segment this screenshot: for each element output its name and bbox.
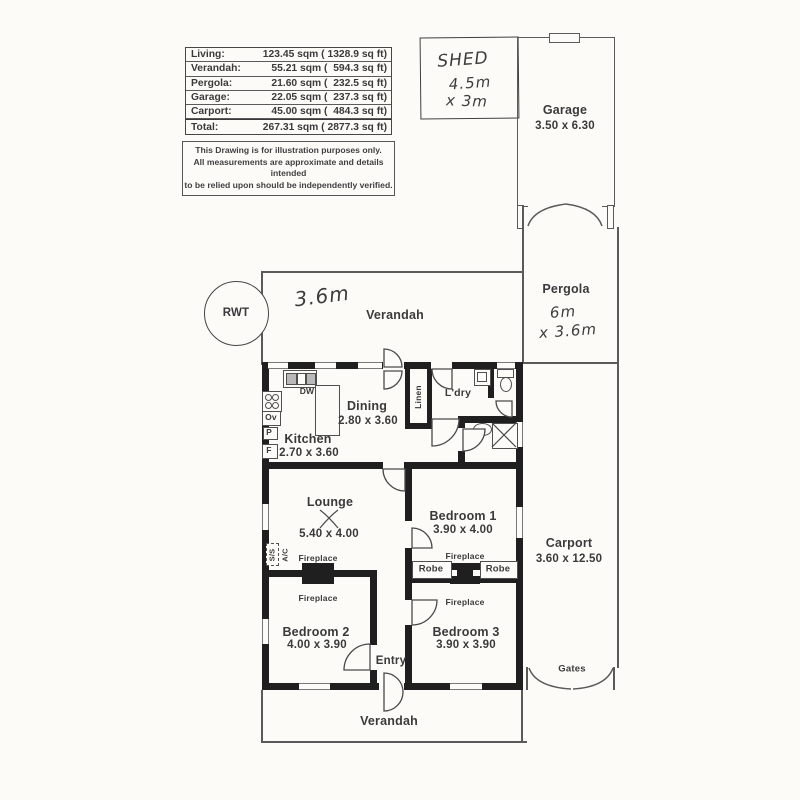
front-door [384,673,403,711]
gate-leaf-right [573,668,613,689]
garage-door-leaf-right [566,204,602,226]
door-arc-overlay [0,0,800,800]
floor-plan-page: Living:123.45 sqm ( 1328.9 sq ft) Verand… [0,0,800,800]
dining-door-leaf-in [384,371,402,389]
gate-leaf-left [529,668,571,689]
hall-door [432,419,459,446]
wc-door [496,401,512,417]
lounge-door [383,469,405,491]
shower-x-symbol [492,423,516,447]
bedroom1-door [412,528,432,548]
garage-door-leaf-left [528,204,566,226]
bathroom-door [463,429,485,451]
ceiling-fan-icon [320,510,338,528]
laundry-door [432,369,452,389]
dining-door-leaf-out [384,349,402,367]
bedroom3-door [412,600,437,625]
bedroom2-door [344,644,370,670]
